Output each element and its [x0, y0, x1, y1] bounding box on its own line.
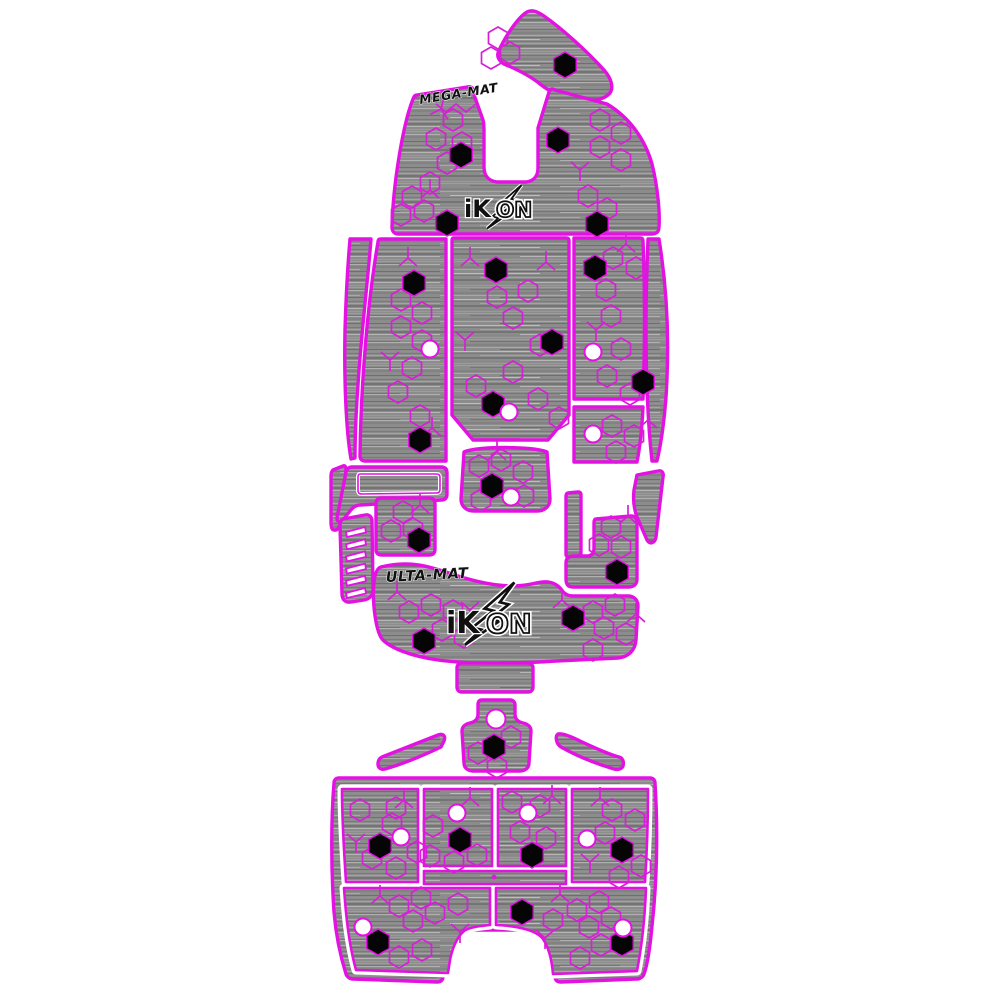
- circle-cutout: [520, 805, 537, 822]
- ikon-logo-text-hollow: ON: [496, 198, 532, 223]
- circle-cutout: [422, 341, 439, 358]
- right-vertical-bar-pad: [566, 492, 581, 557]
- hex-cutout: [547, 127, 570, 153]
- hex-cutout: [413, 628, 436, 654]
- circle-cutout: [487, 710, 506, 729]
- strip-center-dot: [492, 875, 497, 880]
- hex-cutout: [584, 255, 607, 281]
- hex-cutout: [554, 52, 577, 78]
- circle-cutout: [449, 805, 466, 822]
- ikon-logo-text-solid: iK: [464, 195, 492, 223]
- bow-tip-pad: [498, 11, 612, 101]
- ikon-logo-text-hollow: ON: [486, 609, 532, 640]
- circle-cutout: [355, 919, 372, 936]
- ikon-logo-text-solid: iK: [446, 606, 481, 641]
- boat-mat-kit-image: MEGA-MAT ULTA-MAT iK ON ON iK ON ON: [0, 0, 1000, 1000]
- mat-kit-canvas: MEGA-MAT ULTA-MAT iK ON ON iK ON ON: [0, 0, 1000, 1000]
- hex-cutout: [483, 734, 506, 760]
- hex-cutout: [485, 257, 508, 283]
- hex-cutout: [449, 827, 472, 853]
- small-rect-pad: [457, 663, 533, 692]
- left-wedge-trim: [378, 734, 445, 769]
- hex-cutout: [632, 369, 655, 395]
- hex-cutout: [436, 210, 459, 236]
- hex-cutout: [511, 899, 534, 925]
- hex-cutout: [408, 527, 431, 553]
- hex-cutout: [409, 427, 432, 453]
- hex-cutout: [521, 842, 544, 868]
- circle-cutout: [503, 489, 520, 506]
- hex-cutout: [481, 473, 504, 499]
- hex-cutout: [403, 270, 426, 296]
- circle-cutout: [585, 344, 602, 361]
- hex-cutout: [611, 837, 634, 863]
- circle-cutout: [585, 426, 602, 443]
- circle-cutout: [393, 829, 410, 846]
- circle-cutout: [615, 920, 632, 937]
- hex-cutout: [541, 329, 564, 355]
- hex-cutout: [606, 559, 629, 585]
- hex-cutout: [562, 605, 585, 631]
- circle-cutout: [579, 831, 596, 848]
- hex-cutout: [586, 211, 609, 237]
- circle-cutout: [501, 404, 518, 421]
- hex-cutout: [369, 833, 392, 859]
- right-wedge-trim: [556, 734, 623, 770]
- hex-cutout: [450, 142, 473, 168]
